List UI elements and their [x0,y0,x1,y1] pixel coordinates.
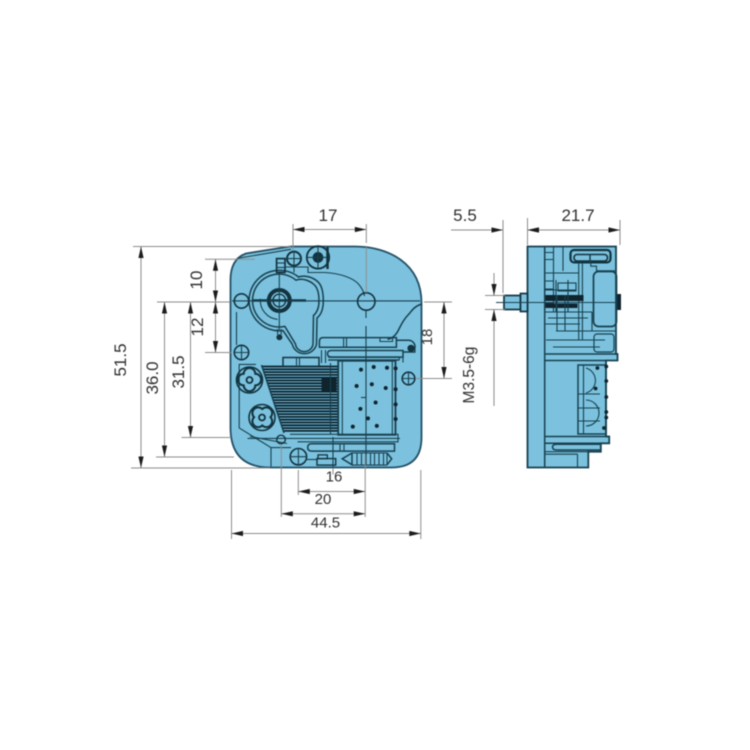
svg-text:36.0: 36.0 [143,361,162,394]
svg-text:10: 10 [187,271,206,290]
svg-text:44.5: 44.5 [311,515,340,532]
svg-text:16: 16 [326,469,343,486]
svg-text:5.5: 5.5 [453,206,477,225]
svg-text:12: 12 [188,318,207,337]
svg-text:18: 18 [419,329,436,346]
svg-text:31.5: 31.5 [169,355,188,388]
svg-text:20: 20 [315,491,332,508]
svg-text:M3.5-6g: M3.5-6g [461,347,478,404]
svg-text:17: 17 [319,206,338,225]
svg-text:21.7: 21.7 [561,206,594,225]
svg-text:51.5: 51.5 [111,343,130,376]
